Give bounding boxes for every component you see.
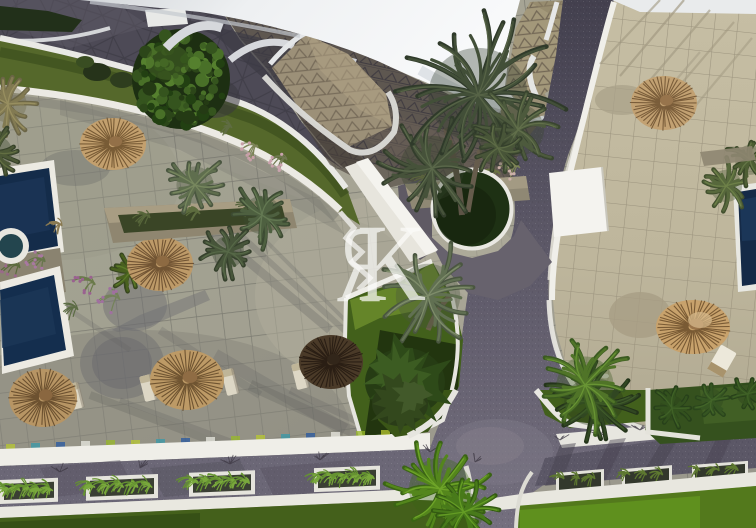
svg-text:K: K	[357, 203, 426, 325]
